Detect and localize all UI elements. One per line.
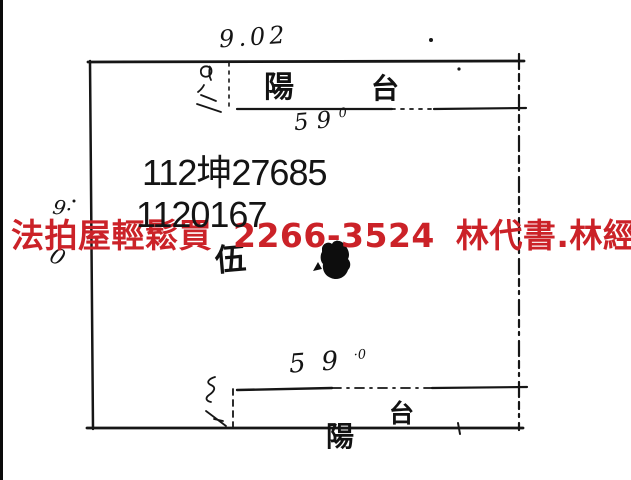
dim-balcony-top-main: 59 <box>293 106 340 136</box>
balcony-bottom-label: 陽 台 <box>287 395 354 480</box>
balcony-top-label: 陽 台 <box>264 73 399 103</box>
dim-top-width: 9.02 <box>218 23 289 52</box>
balcony-top-char2: 台 <box>371 75 399 103</box>
hand-marks-top <box>197 66 221 112</box>
balcony-top-char1: 陽 <box>264 73 294 103</box>
balcony-bottom-char1: 陽 <box>326 420 354 453</box>
dim-balcony-top-sup: 0 <box>338 106 348 122</box>
dim-balcony-bottom-sup: ·0 <box>353 347 366 363</box>
ad-banner: 法拍屋輕鬆買 2266-3524 林代書.林經理 <box>11 219 631 252</box>
balcony-bottom-char2: 台 <box>389 401 414 426</box>
dim-balcony-bottom-main: 59 <box>288 345 355 379</box>
dim-balcony-top: 590 <box>293 108 348 136</box>
scanned-floor-plan: 9.02 陽 台 590 112坤27685 1120167 法拍屋輕鬆買 22… <box>0 0 631 480</box>
hand-marks-bottom <box>206 377 226 426</box>
doc-number: 1120167 <box>136 197 266 233</box>
case-number: 112坤27685 <box>142 155 327 191</box>
dim-balcony-bottom: 59·0 <box>288 346 367 377</box>
